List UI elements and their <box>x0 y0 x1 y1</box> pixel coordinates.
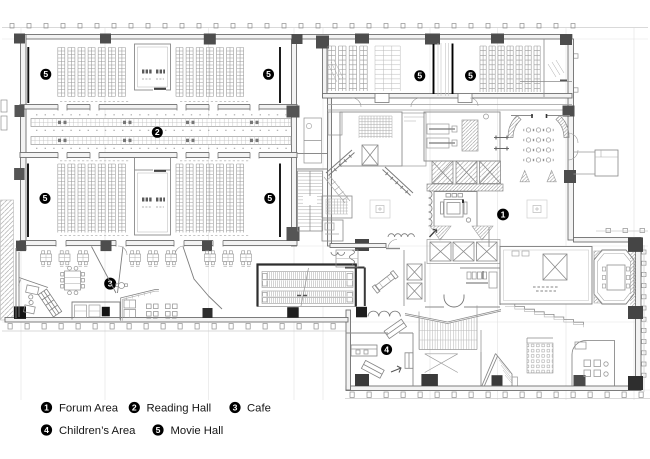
svg-text:1: 1 <box>44 402 49 412</box>
svg-text:5: 5 <box>156 425 161 435</box>
svg-text:3: 3 <box>108 278 113 288</box>
svg-text:Reading Hall: Reading Hall <box>147 403 212 415</box>
svg-text:Movie Hall: Movie Hall <box>171 425 224 437</box>
svg-text:1: 1 <box>501 209 506 219</box>
svg-text:2: 2 <box>132 402 137 412</box>
svg-text:Forum Area: Forum Area <box>59 403 119 415</box>
svg-text:4: 4 <box>44 425 49 435</box>
svg-text:2: 2 <box>155 127 160 137</box>
svg-text:Cafe: Cafe <box>247 403 271 415</box>
svg-text:5: 5 <box>43 193 48 203</box>
svg-text:5: 5 <box>266 69 271 79</box>
svg-text:5: 5 <box>417 71 422 81</box>
svg-text:5: 5 <box>43 69 48 79</box>
svg-text:3: 3 <box>233 402 238 412</box>
svg-text:4: 4 <box>384 344 389 354</box>
svg-text:5: 5 <box>468 70 473 80</box>
svg-text:5: 5 <box>267 193 272 203</box>
svg-text:Children’s Area: Children’s Area <box>59 425 136 437</box>
